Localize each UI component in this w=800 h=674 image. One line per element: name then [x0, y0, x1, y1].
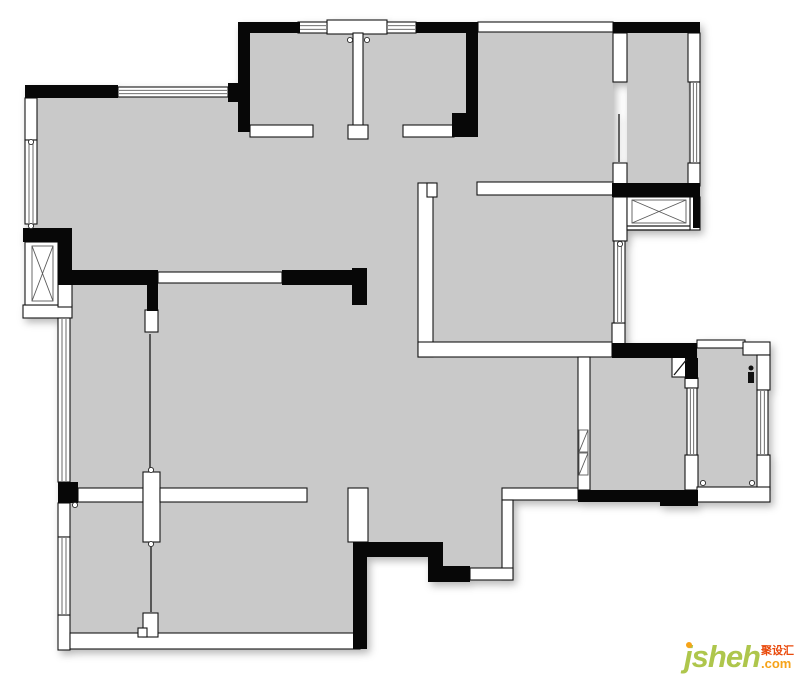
white-wall: [613, 163, 627, 186]
fixture-dot: [749, 366, 754, 371]
hinge-circle: [364, 37, 369, 42]
window: [757, 390, 768, 455]
black-wall: [25, 85, 118, 98]
white-wall: [478, 22, 613, 32]
black-wall: [355, 542, 443, 557]
white-wall: [757, 455, 770, 490]
black-wall: [660, 490, 698, 506]
window: [690, 82, 700, 163]
black-wall: [613, 22, 700, 33]
white-wall: [685, 378, 698, 388]
white-wall: [145, 310, 158, 332]
white-wall: [688, 33, 700, 82]
floor-area: [70, 285, 367, 635]
floor-area: [367, 500, 443, 542]
white-wall: [427, 183, 437, 197]
black-wall: [612, 343, 697, 358]
hinge-circle: [749, 480, 754, 485]
black-wall: [693, 195, 700, 228]
black-wall: [452, 113, 478, 137]
black-wall: [147, 285, 158, 311]
hinge-circle: [148, 467, 153, 472]
white-wall: [697, 340, 745, 348]
window: [387, 22, 416, 33]
watermark-logo: jsheh 聚设汇 .com: [684, 644, 794, 670]
window: [58, 318, 70, 482]
white-wall: [502, 488, 578, 500]
white-wall: [757, 355, 770, 390]
white-wall: [353, 33, 363, 127]
floor-area: [698, 348, 757, 487]
floor-area: [627, 33, 688, 185]
white-wall: [418, 342, 612, 357]
fixture-mark: [748, 372, 754, 383]
white-wall: [158, 272, 282, 283]
white-wall: [78, 488, 143, 502]
white-wall: [25, 98, 37, 140]
white-wall: [403, 125, 454, 137]
watermark-tld-text: .com: [761, 657, 794, 670]
white-wall: [612, 323, 625, 344]
black-wall: [612, 183, 700, 197]
black-wall: [428, 566, 470, 582]
window: [614, 241, 625, 323]
white-wall: [477, 182, 613, 195]
black-wall: [352, 268, 367, 305]
white-wall: [138, 628, 147, 637]
white-wall: [348, 488, 368, 542]
white-wall: [327, 20, 387, 34]
hinge-circle: [700, 480, 705, 485]
black-wall: [58, 270, 158, 285]
watermark-right: 聚设汇 .com: [761, 646, 794, 670]
black-wall: [23, 228, 72, 242]
white-wall: [688, 163, 700, 186]
black-wall: [238, 22, 300, 33]
hinge-circle: [28, 139, 33, 144]
window: [118, 87, 228, 97]
white-wall: [58, 503, 70, 537]
black-wall: [685, 358, 698, 379]
floor-plan-page: jsheh 聚设汇 .com: [0, 0, 800, 674]
white-wall: [613, 197, 627, 241]
white-wall: [348, 125, 368, 139]
white-wall: [743, 342, 770, 355]
floor-area: [443, 500, 502, 568]
white-wall: [58, 615, 70, 650]
white-wall: [143, 472, 160, 542]
black-wall: [238, 22, 250, 132]
white-wall: [418, 183, 433, 357]
watermark-brand-text: jsheh: [684, 644, 760, 670]
window: [298, 22, 327, 33]
white-wall: [685, 455, 698, 490]
black-wall: [353, 542, 367, 649]
black-wall: [58, 482, 78, 503]
hinge-circle: [28, 223, 33, 228]
window: [58, 537, 70, 615]
white-wall: [697, 487, 770, 502]
floor-area: [367, 285, 578, 500]
hinge-circle: [148, 541, 153, 546]
window: [25, 140, 37, 224]
hinge-circle: [617, 241, 622, 246]
hinge-circle: [347, 37, 352, 42]
white-wall: [250, 125, 313, 137]
white-wall: [160, 488, 307, 502]
white-wall: [613, 33, 627, 82]
hinge-circle: [72, 502, 77, 507]
window: [687, 388, 697, 455]
white-wall: [70, 633, 360, 649]
white-wall: [470, 568, 513, 580]
floor-plan: [0, 0, 800, 674]
watermark-j-dot: [686, 642, 692, 648]
